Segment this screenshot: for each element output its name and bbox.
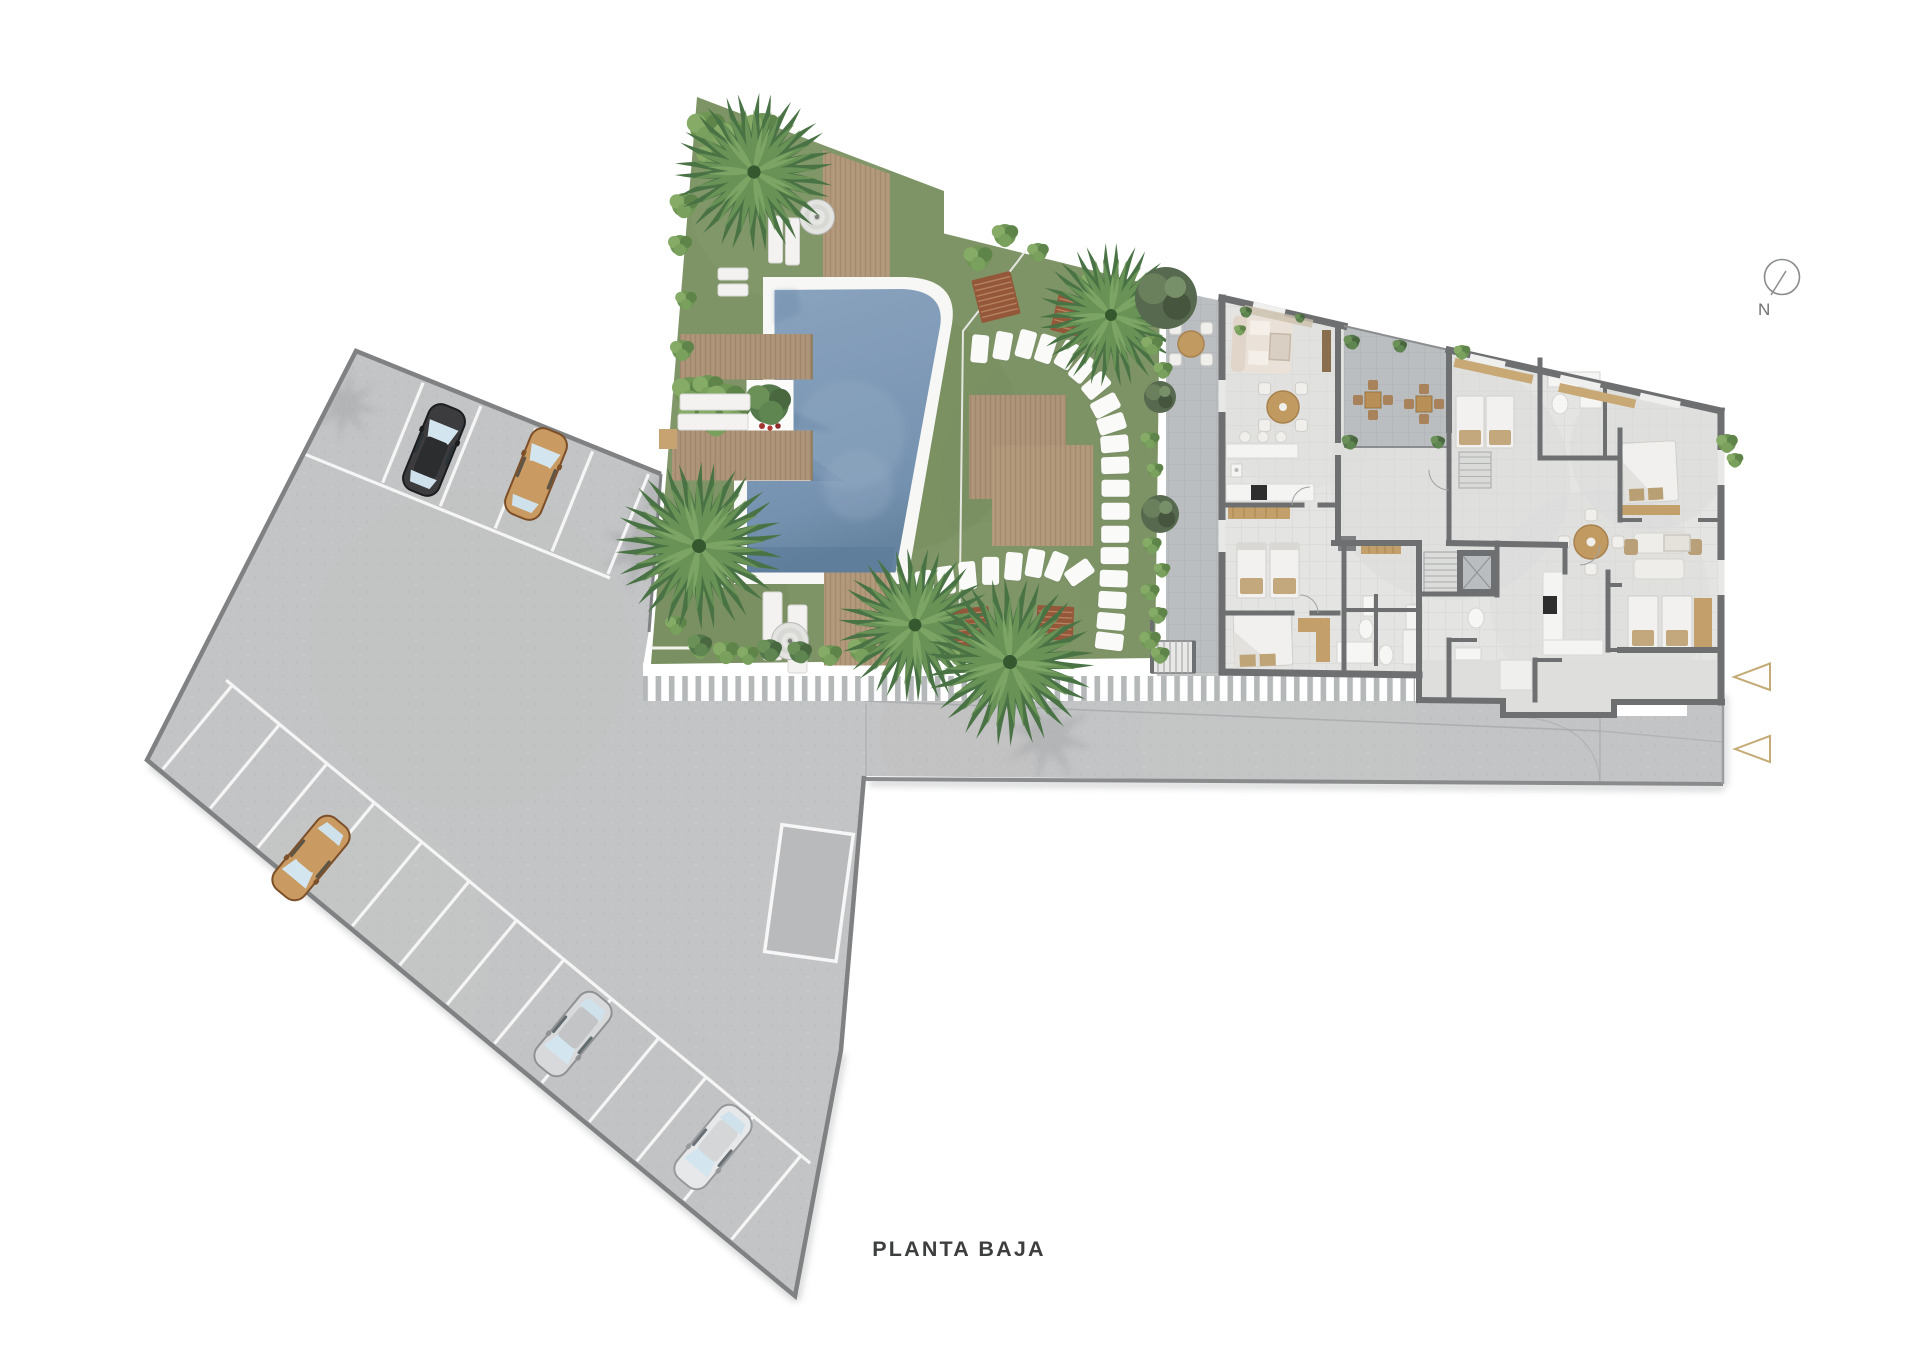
svg-text:PLANTA BAJA: PLANTA BAJA (872, 1237, 1046, 1261)
svg-text:N: N (1758, 300, 1770, 319)
